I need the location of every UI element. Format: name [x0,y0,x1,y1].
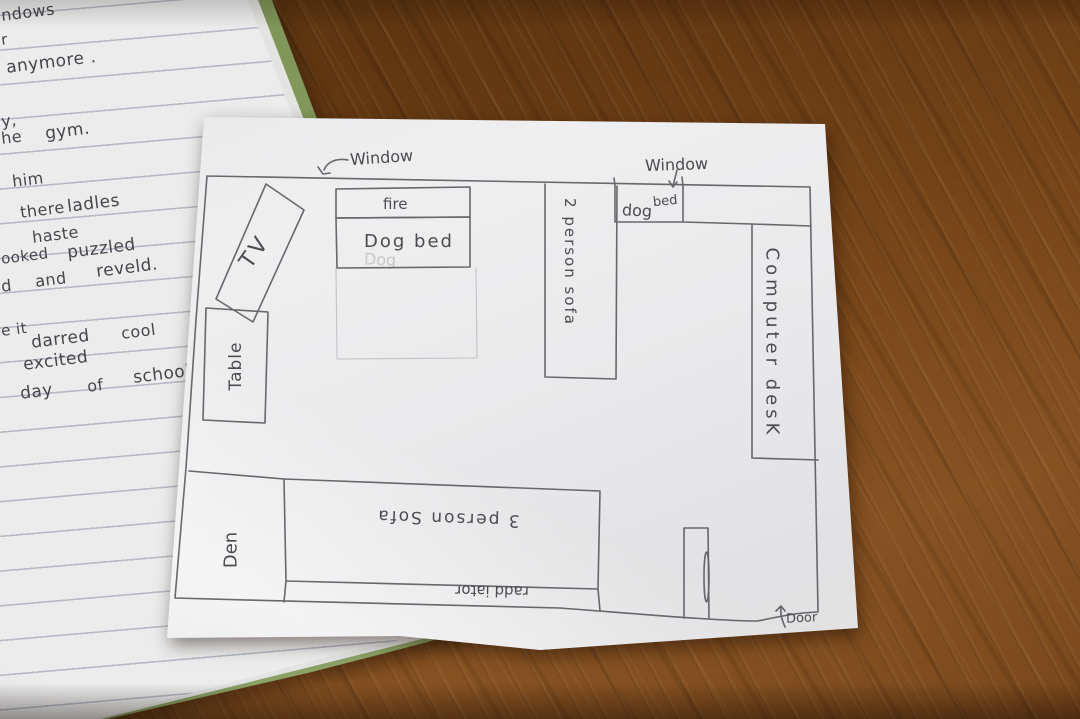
dog-bed-label: Dog bed [364,231,454,252]
window-1-label: Window [349,146,413,169]
photo-scene: { "scene": { "description": "Photo of a … [0,0,1080,719]
table-label: Table [226,342,246,391]
fireplace-label: fire [383,195,408,213]
sofa2-label: 2 person sofa [561,198,579,326]
dog-bed-2-label-bed: bed [652,193,678,210]
erased-dog-label: Dog [364,249,397,269]
dog-bed-2-label-dog: dog [622,200,653,221]
radiator-label: radd iator [455,581,529,600]
computer-desk-label: Computer desK [762,248,783,439]
window-2-label: Window [645,154,709,175]
den-label: Den [221,532,242,568]
sofa3-label: 3 person Sofa [376,506,520,531]
tv-label: TV [235,231,275,274]
plan-labels: Window Window fire Dog bed Dog 2 person … [0,0,1080,719]
door-label: Door [786,610,818,627]
